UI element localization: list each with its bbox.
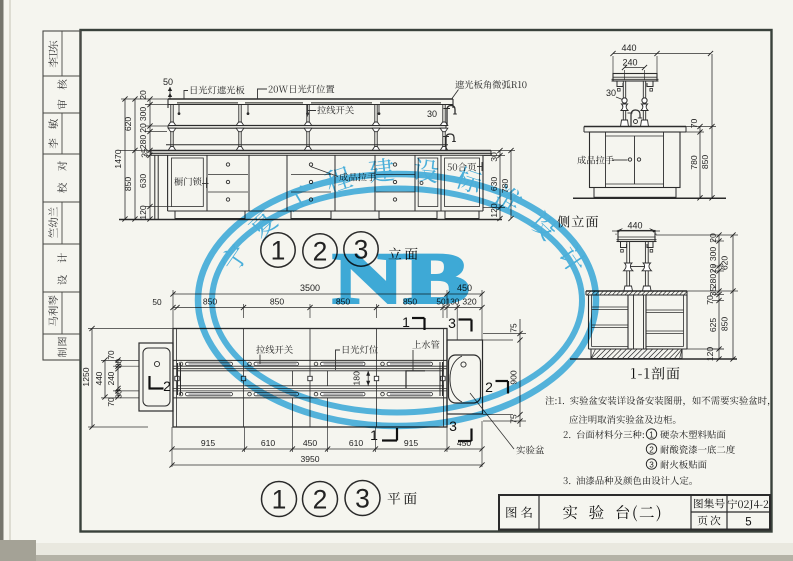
- svg-text:NB: NB: [333, 239, 470, 319]
- svg-text:2: 2: [313, 485, 328, 515]
- svg-text:3: 3: [649, 460, 654, 469]
- svg-text:3: 3: [355, 484, 370, 514]
- svg-text:2: 2: [163, 378, 171, 394]
- svg-text:1: 1: [370, 427, 378, 443]
- svg-text:120: 120: [138, 205, 148, 220]
- svg-text:35: 35: [140, 148, 150, 158]
- svg-text:50: 50: [163, 77, 173, 87]
- svg-text:850: 850: [720, 317, 730, 332]
- svg-text:2: 2: [649, 445, 654, 454]
- svg-text:70: 70: [106, 350, 116, 360]
- svg-text:30: 30: [114, 389, 124, 399]
- svg-text:915: 915: [201, 438, 216, 448]
- svg-text:20: 20: [708, 264, 718, 274]
- svg-text:3500: 3500: [300, 283, 320, 293]
- svg-text:30: 30: [427, 109, 437, 119]
- svg-text:240: 240: [622, 58, 637, 68]
- svg-text:780: 780: [689, 155, 699, 170]
- svg-text:630: 630: [138, 174, 148, 189]
- svg-text:70: 70: [705, 295, 715, 305]
- svg-text:610: 610: [261, 438, 276, 448]
- svg-text:440: 440: [627, 221, 642, 231]
- svg-text:2: 2: [485, 379, 493, 395]
- svg-text:280: 280: [138, 135, 148, 150]
- svg-text:120: 120: [705, 347, 715, 362]
- svg-text:30: 30: [114, 359, 124, 369]
- svg-text:1: 1: [272, 485, 287, 515]
- svg-text:180: 180: [352, 371, 362, 386]
- svg-text:2: 2: [313, 237, 328, 267]
- svg-text:1: 1: [271, 236, 286, 266]
- svg-text:850: 850: [123, 177, 133, 192]
- svg-text:35: 35: [708, 287, 718, 297]
- svg-text:300: 300: [708, 247, 718, 262]
- svg-text:300: 300: [138, 107, 148, 122]
- svg-text:20: 20: [138, 123, 148, 133]
- svg-text:30: 30: [489, 152, 499, 162]
- svg-text:5: 5: [745, 517, 751, 529]
- svg-text:1470: 1470: [113, 149, 123, 168]
- svg-text:625: 625: [708, 318, 718, 333]
- svg-text:440: 440: [621, 43, 636, 53]
- svg-text:450: 450: [303, 438, 318, 448]
- svg-text:30: 30: [606, 88, 616, 98]
- svg-text:70: 70: [106, 397, 116, 407]
- svg-text:915: 915: [404, 438, 419, 448]
- svg-text:280: 280: [708, 274, 718, 289]
- svg-text:240: 240: [106, 371, 116, 385]
- svg-text:1: 1: [649, 430, 654, 439]
- svg-text:3950: 3950: [300, 454, 319, 464]
- svg-text:850: 850: [270, 297, 285, 307]
- svg-text:620: 620: [123, 117, 133, 132]
- svg-text:20: 20: [708, 233, 718, 243]
- svg-text:850: 850: [700, 155, 710, 170]
- svg-text:620: 620: [720, 256, 730, 271]
- svg-text:70: 70: [689, 119, 699, 129]
- svg-text:440: 440: [94, 371, 104, 385]
- svg-text:50: 50: [152, 297, 162, 307]
- svg-text:450: 450: [457, 438, 472, 448]
- svg-text:610: 610: [349, 438, 364, 448]
- svg-text:75: 75: [509, 323, 519, 333]
- svg-text:20: 20: [138, 90, 148, 100]
- svg-text:75: 75: [509, 414, 519, 424]
- svg-text:1250: 1250: [81, 367, 91, 386]
